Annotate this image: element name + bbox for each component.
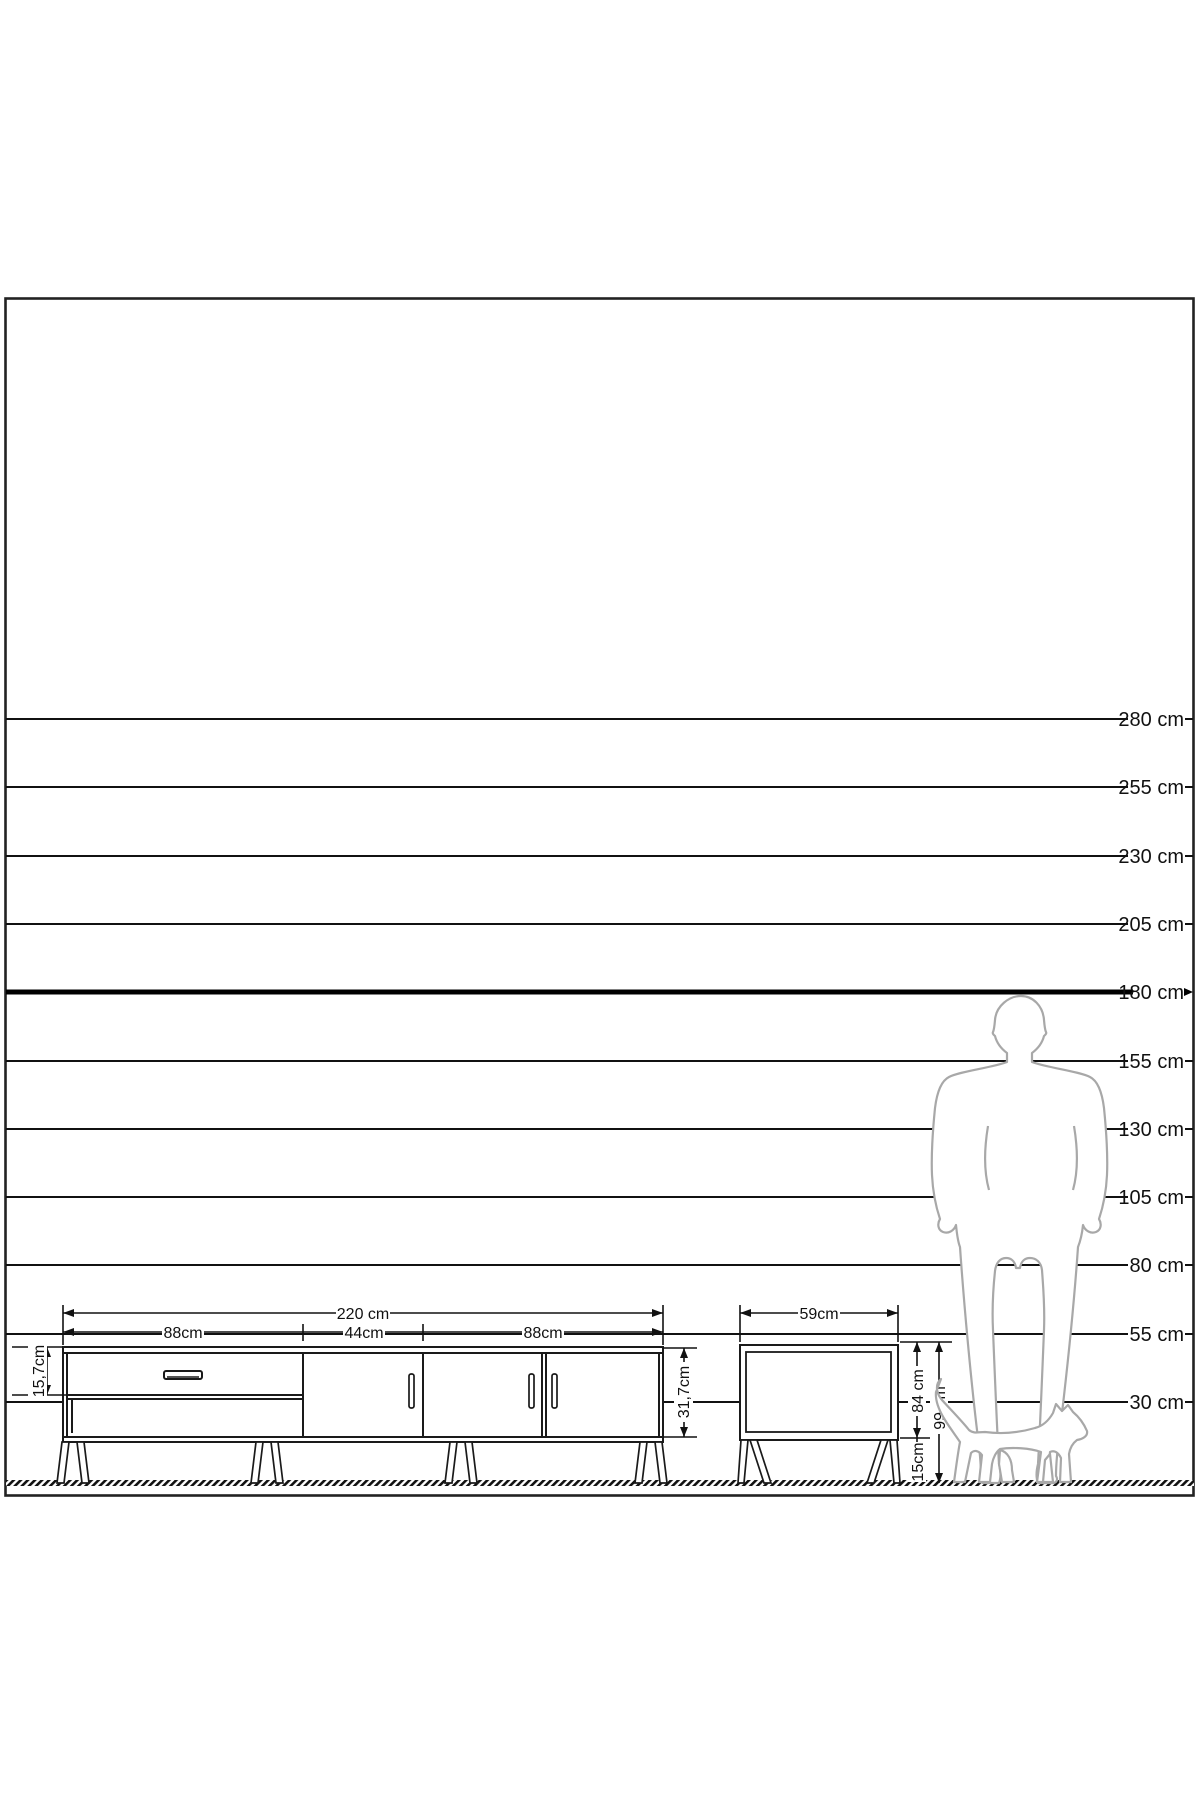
tv-stand-legs — [57, 1442, 667, 1483]
tv-stand-drawing — [57, 1347, 667, 1483]
table-width-label: 59cm — [799, 1306, 838, 1323]
scale-label-80: 80 cm — [1130, 1255, 1184, 1277]
tv-drawer-handle — [164, 1371, 202, 1379]
man-silhouette — [932, 996, 1108, 1483]
tv-section-2-label: 44cm — [344, 1325, 383, 1342]
scale-label-205: 205 cm — [1118, 914, 1184, 936]
drawing-border — [6, 299, 1194, 1496]
table-body-height-label: 84 cm — [910, 1369, 927, 1413]
tv-drawer-height-label: 15,7cm — [31, 1345, 48, 1397]
cat-far-hind-leg — [999, 1450, 1014, 1482]
scale-label-230: 230 cm — [1118, 846, 1184, 868]
scale-label-30: 30 cm — [1130, 1392, 1184, 1414]
wall-scale-labels: 280 cm 255 cm 230 cm 205 cm 180 cm 155 c… — [1118, 709, 1184, 1414]
side-table-body — [740, 1345, 898, 1440]
man-outline — [932, 996, 1108, 1483]
dimension-diagram-page: 220 cm 88cm 44cm 88cm 59cm 15,7cm 31,7cm… — [0, 0, 1200, 1800]
scale-180-arrow — [1184, 988, 1193, 996]
tv-door-handle-3 — [552, 1374, 557, 1408]
scale-label-130: 130 cm — [1118, 1119, 1184, 1141]
tv-total-width-label: 220 cm — [337, 1306, 389, 1323]
tv-section-1-label: 88cm — [163, 1325, 202, 1342]
scale-label-155: 155 cm — [1118, 1051, 1184, 1073]
tv-section-3-label: 88cm — [523, 1325, 562, 1342]
table-leg-height-label: 15cm — [910, 1442, 927, 1481]
dimension-diagram: 220 cm 88cm 44cm 88cm 59cm 15,7cm 31,7cm… — [0, 0, 1200, 1800]
side-table-legs — [738, 1440, 900, 1483]
tv-body-height-label: 31,7cm — [676, 1366, 693, 1418]
floor-hatch-line — [6, 1480, 1194, 1486]
scale-label-280: 280 cm — [1118, 709, 1184, 731]
scale-label-55: 55 cm — [1130, 1324, 1184, 1346]
tv-door-handle-1 — [409, 1374, 414, 1408]
scale-label-105: 105 cm — [1118, 1187, 1184, 1209]
scale-label-180: 180 cm — [1118, 982, 1184, 1004]
scale-label-255: 255 cm — [1118, 777, 1184, 799]
tv-door-handle-2 — [529, 1374, 534, 1408]
side-table-drawing — [738, 1345, 900, 1483]
